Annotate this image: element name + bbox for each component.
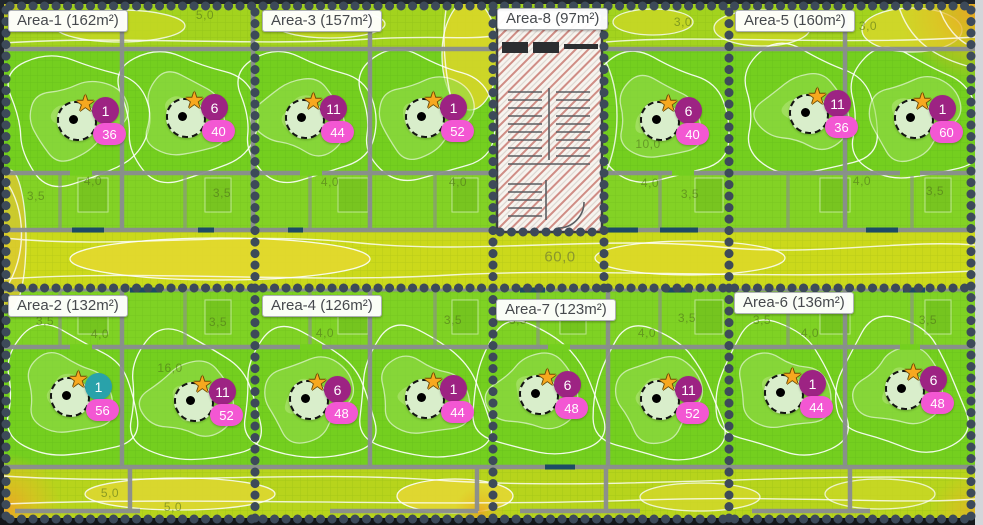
zone-label-text: Area-6 (136m²): [743, 294, 845, 311]
floorplan-heatmap-canvas[interactable]: Area-1 (162m²) Area-3 (157m²) Area-8 (97…: [0, 0, 983, 525]
dimension-label: 4,0: [853, 174, 871, 188]
dimension-label: 3,5: [444, 313, 462, 327]
ap-number-badge[interactable]: 11: [824, 90, 851, 117]
ap-number-badge[interactable]: 6: [675, 97, 702, 124]
ap-value-badge[interactable]: 52: [441, 120, 474, 142]
dimension-label: 3,5: [27, 189, 45, 203]
ap-number-badge[interactable]: 6: [324, 376, 351, 403]
ap-number-badge[interactable]: 1: [85, 373, 112, 400]
dimension-label: 3,5: [926, 184, 944, 198]
ap-number-badge[interactable]: 1: [929, 95, 956, 122]
zone-label-text: Area-2 (132m²): [17, 297, 119, 314]
dimension-label: 4,0: [321, 175, 339, 189]
zone-label-text: Area-7 (123m²): [505, 301, 607, 318]
ap-value-badge[interactable]: 60: [930, 121, 963, 143]
dimension-label: 5,0: [101, 486, 119, 500]
ap-number-badge[interactable]: 6: [554, 371, 581, 398]
ap-value-badge[interactable]: 44: [321, 121, 354, 143]
dimension-label: 5,0: [164, 500, 182, 514]
ap-value-badge[interactable]: 36: [825, 116, 858, 138]
dimension-label: 4,0: [316, 326, 334, 340]
zone-label-area-4[interactable]: Area-4 (126m²): [262, 295, 382, 317]
ap-number-badge[interactable]: 1: [799, 370, 826, 397]
ap-center-dot: [297, 113, 306, 122]
ap-number-badge[interactable]: 6: [920, 366, 947, 393]
dimension-label: 3,5: [753, 313, 771, 327]
dimension-label: 3,5: [919, 313, 937, 327]
ap-number-badge[interactable]: 11: [320, 95, 347, 122]
annotation-overlay: Area-1 (162m²) Area-3 (157m²) Area-8 (97…: [0, 0, 983, 525]
ap-center-dot: [801, 108, 810, 117]
ap-center-dot: [417, 112, 426, 121]
dimension-label: 3,0: [859, 19, 877, 33]
ap-number-badge[interactable]: 11: [675, 376, 702, 403]
ap-value-badge[interactable]: 48: [325, 402, 358, 424]
ap-center-dot: [186, 396, 195, 405]
ap-center-dot: [178, 112, 187, 121]
dimension-label: 3,5: [209, 315, 227, 329]
ap-value-badge[interactable]: 48: [555, 397, 588, 419]
ap-value-badge[interactable]: 48: [921, 392, 954, 414]
dimension-label: 4,0: [91, 327, 109, 341]
dimension-label: 3,5: [213, 186, 231, 200]
corridor-dimension-label: 60,0: [544, 249, 575, 266]
ap-number-badge[interactable]: 11: [209, 378, 236, 405]
zone-label-area-6[interactable]: Area-6 (136m²): [734, 292, 854, 314]
ap-number-badge[interactable]: 1: [440, 94, 467, 121]
ap-value-badge[interactable]: 44: [800, 396, 833, 418]
zone-label-text: Area-3 (157m²): [271, 12, 373, 29]
zone-label-area-8[interactable]: Area-8 (97m²): [497, 8, 608, 30]
ap-center-dot: [62, 391, 71, 400]
ap-center-dot: [652, 115, 661, 124]
dimension-label: 5,0: [196, 8, 214, 22]
zone-label-text: Area-8 (97m²): [506, 10, 599, 27]
dimension-label: 3,0: [674, 15, 692, 29]
zone-label-text: Area-4 (126m²): [271, 297, 373, 314]
dimension-label: 16,0: [157, 361, 182, 375]
ap-center-dot: [417, 393, 426, 402]
ap-value-badge[interactable]: 40: [202, 120, 235, 142]
ap-value-badge[interactable]: 40: [676, 123, 709, 145]
ap-center-dot: [652, 394, 661, 403]
ap-center-dot: [776, 388, 785, 397]
zone-label-text: Area-1 (162m²): [17, 12, 119, 29]
ap-center-dot: [69, 115, 78, 124]
ap-center-dot: [897, 384, 906, 393]
dimension-label: 4,0: [84, 174, 102, 188]
dimension-label: 4,0: [449, 175, 467, 189]
zone-label-area-2[interactable]: Area-2 (132m²): [8, 295, 128, 317]
ap-value-badge[interactable]: 56: [86, 399, 119, 421]
dimension-label: 3,5: [681, 187, 699, 201]
ap-center-dot: [531, 389, 540, 398]
ap-value-badge[interactable]: 36: [93, 123, 126, 145]
zone-label-area-7[interactable]: Area-7 (123m²): [496, 299, 616, 321]
ap-center-dot: [906, 113, 915, 122]
zone-label-area-5[interactable]: Area-5 (160m²): [735, 10, 855, 32]
ap-value-badge[interactable]: 52: [676, 402, 709, 424]
dimension-label: 4,0: [801, 326, 819, 340]
dimension-label: 4,0: [641, 176, 659, 190]
dimension-label: 4,0: [638, 326, 656, 340]
ap-number-badge[interactable]: 1: [440, 375, 467, 402]
ap-number-badge[interactable]: 6: [201, 94, 228, 121]
ap-value-badge[interactable]: 44: [441, 401, 474, 423]
ap-center-dot: [301, 394, 310, 403]
dimension-label: 3,5: [678, 311, 696, 325]
zone-label-area-3[interactable]: Area-3 (157m²): [262, 10, 382, 32]
ap-value-badge[interactable]: 52: [210, 404, 243, 426]
zone-label-text: Area-5 (160m²): [744, 12, 846, 29]
zone-label-area-1[interactable]: Area-1 (162m²): [8, 10, 128, 32]
ap-number-badge[interactable]: 1: [92, 97, 119, 124]
